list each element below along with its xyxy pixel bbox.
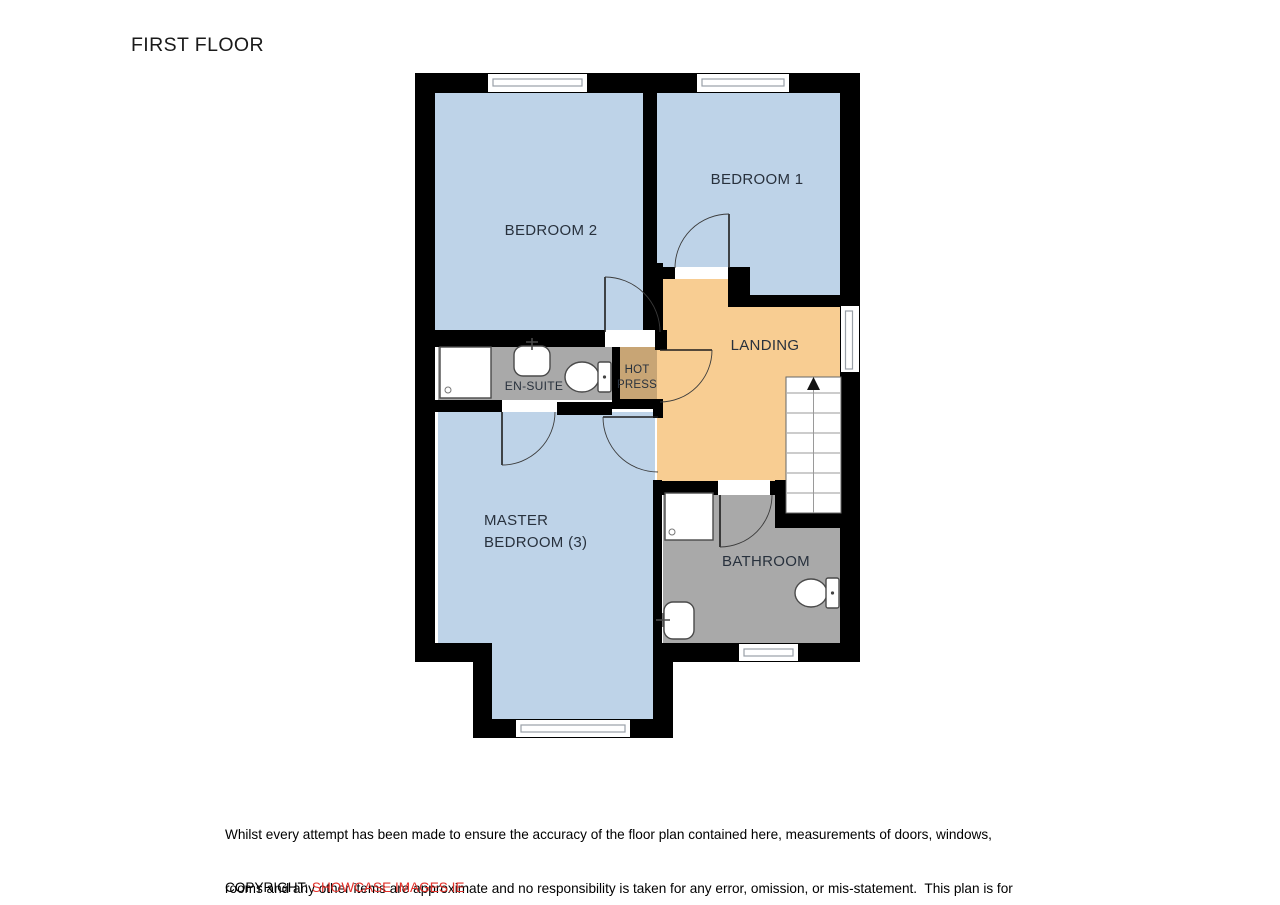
label-ensuite: EN-SUITE bbox=[505, 379, 563, 393]
shower-icon bbox=[665, 493, 713, 540]
wall-segment bbox=[655, 330, 667, 350]
window-icon bbox=[488, 74, 587, 92]
room-master-bedroom-floor bbox=[438, 412, 655, 719]
label-landing: LANDING bbox=[731, 337, 800, 354]
room-bedroom1-floor bbox=[657, 93, 840, 295]
wall-segment bbox=[612, 342, 620, 400]
wall-segment bbox=[415, 73, 860, 93]
wall-segment bbox=[663, 267, 675, 279]
wall-segment bbox=[643, 263, 663, 332]
window-icon bbox=[739, 644, 798, 661]
label-master-line1: MASTER bbox=[484, 512, 548, 529]
doorway-gap bbox=[605, 330, 655, 347]
label-master-line2: BEDROOM (3) bbox=[484, 534, 587, 551]
label-bedroom2: BEDROOM 2 bbox=[505, 222, 598, 239]
disclaimer-line: Whilst every attempt has been made to en… bbox=[225, 826, 1018, 844]
wall-segment bbox=[415, 73, 435, 662]
label-hotpress-line1: HOT bbox=[625, 364, 650, 376]
wall-segment bbox=[653, 480, 662, 643]
doorway-gap bbox=[675, 267, 728, 279]
toilet-icon bbox=[565, 362, 611, 392]
window-icon bbox=[841, 306, 859, 372]
wall-segment bbox=[435, 330, 605, 347]
staircase-icon bbox=[786, 377, 841, 513]
floorplan-page: FIRST FLOOR bbox=[0, 0, 1280, 905]
room-bedroom2-floor bbox=[435, 93, 643, 330]
label-bathroom: BATHROOM bbox=[722, 553, 810, 570]
copyright-label: COPYRIGHT: bbox=[225, 880, 308, 895]
label-bedroom1: BEDROOM 1 bbox=[711, 171, 804, 188]
wall-segment bbox=[742, 295, 843, 307]
floorplan-drawing: BEDROOM 2 BEDROOM 1 LANDING EN-SUITE HOT… bbox=[0, 0, 1280, 905]
copyright-agency: SHOWCASE IMAGES.IE bbox=[312, 880, 465, 895]
wall-segment bbox=[435, 400, 502, 412]
wall-segment bbox=[557, 402, 612, 415]
copyright-line: COPYRIGHT: SHOWCASE IMAGES.IE bbox=[225, 880, 464, 895]
doorway-gap bbox=[718, 480, 770, 495]
shower-icon bbox=[440, 347, 491, 398]
toilet-icon bbox=[795, 578, 839, 608]
window-icon bbox=[697, 74, 789, 92]
wall-segment bbox=[643, 93, 657, 267]
window-icon bbox=[516, 720, 630, 737]
doorway-gap bbox=[502, 400, 557, 412]
label-hotpress-line2: PRESS bbox=[617, 379, 657, 391]
wall-segment bbox=[612, 399, 657, 409]
